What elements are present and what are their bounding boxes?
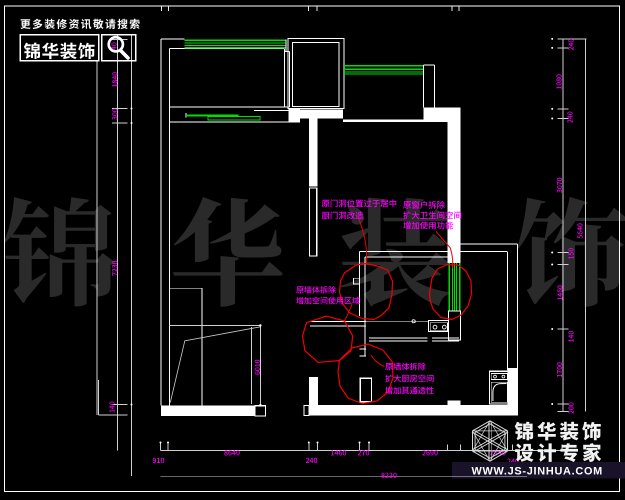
svg-text:WWW.JS-JINHUA.COM: WWW.JS-JINHUA.COM — [472, 465, 603, 477]
